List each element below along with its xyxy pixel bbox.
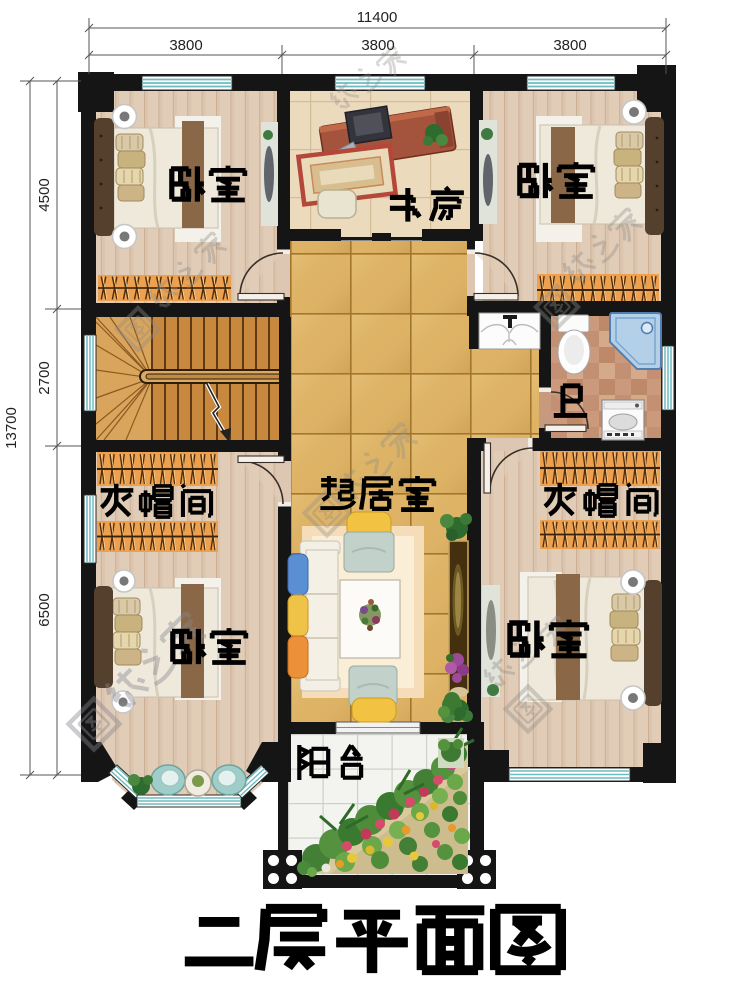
svg-text:3800: 3800	[553, 37, 586, 54]
svg-text:13700: 13700	[3, 407, 20, 449]
svg-text:3800: 3800	[169, 37, 202, 54]
svg-text:11400: 11400	[357, 9, 398, 26]
svg-text:2700: 2700	[36, 361, 53, 394]
svg-text:4500: 4500	[36, 178, 53, 211]
svg-text:3800: 3800	[361, 37, 394, 54]
svg-text:6500: 6500	[36, 593, 53, 626]
